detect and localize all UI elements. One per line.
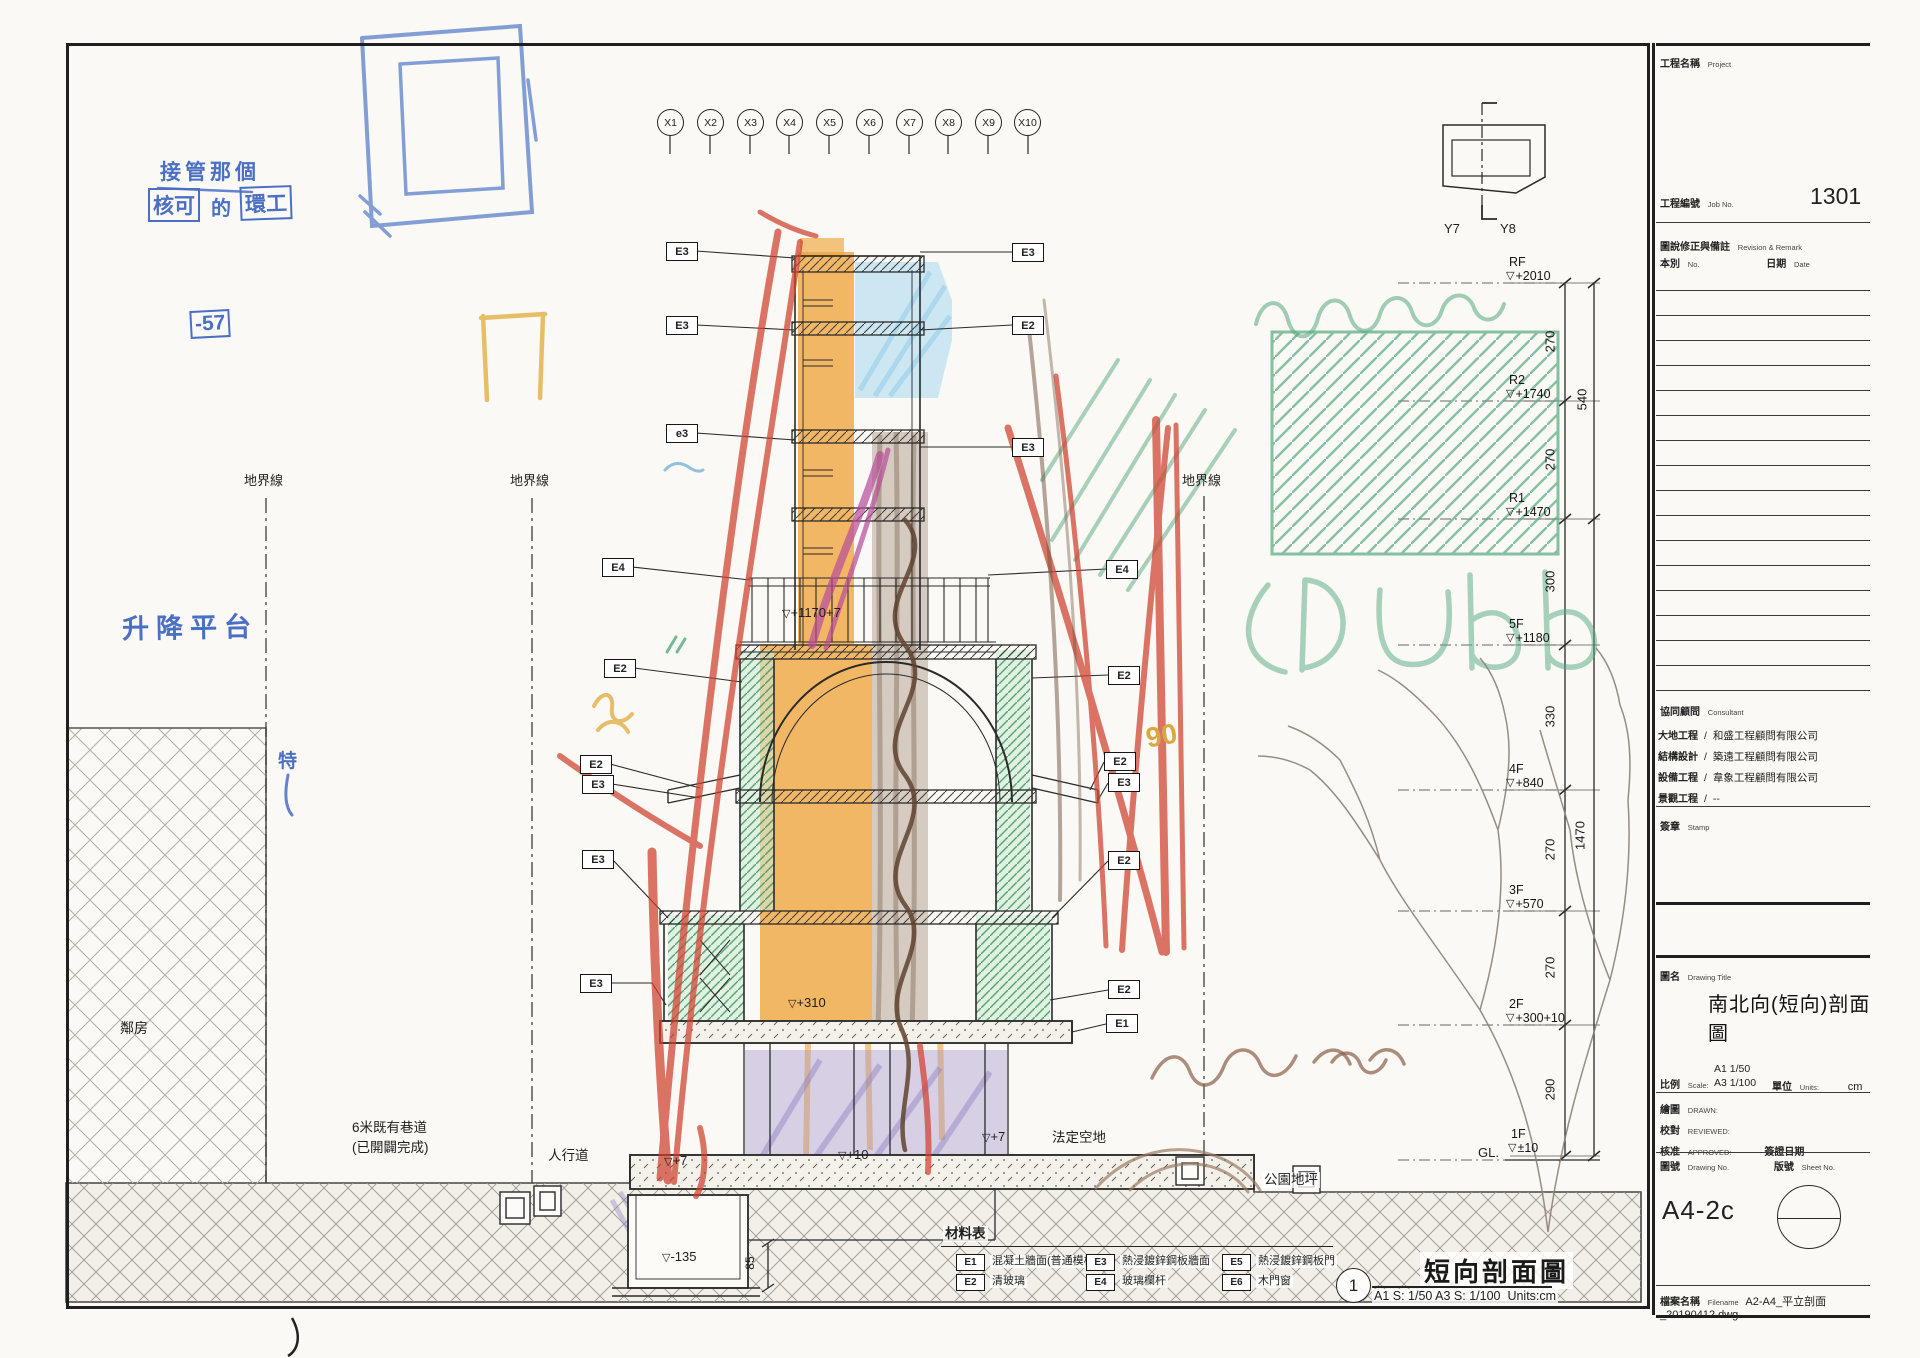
grid-label: X10 (1018, 117, 1037, 129)
level-4f: 4F▽+840 (1506, 763, 1544, 791)
grid-bubble-x8: X8 (935, 109, 962, 136)
revision-rule-line (1656, 365, 1870, 366)
revision-rule-line (1656, 340, 1870, 341)
legend-label-e6: 木門窗 (1256, 1275, 1293, 1288)
consultant-role: 結構設計 (1658, 752, 1698, 763)
revision-rule-line (1656, 315, 1870, 316)
drawing-name-header: 圖名 Drawing Title (1660, 968, 1731, 983)
titleblock-rule (1656, 806, 1870, 807)
dim-1470: 1470 (1573, 814, 1588, 858)
sheet-no-label: 版號 (1774, 1162, 1794, 1173)
revision-rule-line (1656, 390, 1870, 391)
level-triangle-icon: ▽ (1506, 388, 1514, 400)
terrace-level-mark: ▽+1170+7 (782, 606, 841, 621)
consultant-header: 協同顧問 Consultant (1660, 703, 1744, 718)
grid-label: X8 (942, 117, 955, 129)
callout-left-5: E2 (604, 659, 636, 678)
callout-left-2: E3 (666, 316, 698, 335)
legend-label-e5: 熱浸鍍鋅鋼板門 (1256, 1255, 1337, 1268)
titleblock-bottom-border (1656, 1315, 1870, 1318)
rev-no-label-en: No. (1688, 260, 1700, 269)
consultant-label-en: Consultant (1708, 708, 1744, 717)
revision-rule-line (1656, 615, 1870, 616)
revision-rule-line (1656, 440, 1870, 441)
consultant-row-landscape: 景觀工程/-- (1658, 790, 1720, 805)
callout-right-8: E2 (1108, 851, 1140, 870)
callout-left-1: E3 (666, 242, 698, 261)
dim-270-1: 270 (1543, 320, 1558, 364)
grid-bubble-x5: X5 (816, 109, 843, 136)
revision-rule-line (1656, 490, 1870, 491)
revision-header: 圖說修正與備註 Revision & Remark (1660, 238, 1802, 253)
callout-left-3: e3 (666, 424, 698, 443)
legend-label-e4: 玻璃欄杆 (1120, 1275, 1168, 1288)
revision-label-en: Revision & Remark (1738, 243, 1802, 252)
orientation-circle-icon (1777, 1185, 1841, 1249)
revision-rule-line (1656, 540, 1870, 541)
scale-a3: A3 1/100 (1714, 1077, 1756, 1089)
floor-name: R1 (1509, 492, 1551, 506)
grid-label: X7 (903, 117, 916, 129)
grid-label: X2 (704, 117, 717, 129)
boundary-label-3: 地界線 (1182, 474, 1221, 489)
right-walk-value: +7 (990, 1129, 1005, 1144)
keyplan-y8-label: Y8 (1500, 222, 1516, 237)
legend-title: 材料表 (943, 1226, 988, 1242)
consultant-name: 築遠工程顧問有限公司 (1713, 751, 1818, 763)
neighbor-building-hatch (68, 728, 266, 1183)
jobno-label: 工程編號 (1660, 199, 1700, 210)
dim-270-4: 270 (1543, 946, 1558, 990)
floor-elevation: ±10 (1517, 1142, 1538, 1156)
consultant-role: 景觀工程 (1658, 794, 1698, 805)
sheet-no-label-en: Sheet No. (1802, 1163, 1835, 1172)
consultant-sep: / (1704, 730, 1707, 742)
consultant-role: 設備工程 (1658, 773, 1698, 784)
keyplan-y7-label: Y7 (1444, 222, 1460, 237)
neighbor-label: 鄰房 (120, 1020, 148, 1036)
revision-no-date-row: 本別 No. 日期 Date (1660, 255, 1810, 270)
grid-bubble-x1: X1 (657, 109, 684, 136)
boundary-label-2: 地界線 (510, 474, 549, 489)
jobno-value: 1301 (1810, 183, 1861, 210)
handwriting-te: 特 (278, 746, 297, 773)
callout-left-7: E3 (582, 775, 614, 794)
grid-label: X9 (982, 117, 995, 129)
dim-330: 330 (1543, 695, 1558, 739)
right-walk-level-mark: ▽+7 (982, 1130, 1005, 1145)
handwriting-box-b: 環工 (239, 185, 292, 221)
road-label-2: (已開闢完成) (352, 1140, 429, 1156)
rev-date-label-en: Date (1794, 260, 1810, 269)
terrace-level-value: +1170+7 (790, 605, 840, 620)
floor-name: R2 (1509, 374, 1551, 388)
revision-rule-line (1656, 565, 1870, 566)
level-rf: RF▽+2010 (1506, 256, 1551, 284)
consultant-sep: / (1704, 751, 1707, 763)
titleblock-thick-rule (1656, 955, 1870, 958)
legend-label-e1: 混凝土牆面(普通模板) (990, 1255, 1100, 1268)
dim-540: 540 (1575, 378, 1590, 422)
callout-right-9: E2 (1108, 980, 1140, 999)
stamp-label-en: Stamp (1688, 823, 1710, 832)
handwriting-platform: 升降平台 (122, 605, 259, 646)
revision-rule-line (1656, 515, 1870, 516)
callout-left-6: E2 (580, 755, 612, 774)
grid-label: X1 (664, 117, 677, 129)
consultant-label: 協同顧問 (1660, 707, 1700, 718)
level-triangle-icon: ▽ (1506, 898, 1514, 910)
floor-elevation: +2010 (1515, 270, 1550, 284)
consultant-row-mep: 設備工程/韋象工程顧問有限公司 (1658, 769, 1818, 785)
titleblock-rule (1656, 1152, 1870, 1153)
grid-bubble-x7: X7 (896, 109, 923, 136)
dim-270-3: 270 (1543, 828, 1558, 872)
grid-bubble-x3: X3 (737, 109, 764, 136)
entry-level-mark: ▽+10 (838, 1148, 869, 1163)
floor-elevation: +570 (1515, 898, 1543, 912)
callout-left-9: E3 (580, 974, 612, 993)
level-triangle-icon: ▽ (1506, 1012, 1514, 1024)
project-label: 工程名稱 (1660, 59, 1700, 70)
filename-label-en: Filename (1708, 1298, 1739, 1307)
boundary-label-1: 地界線 (244, 474, 283, 489)
drawn-label: 繪圖 (1660, 1105, 1680, 1116)
park-label: 公園地坪 (1262, 1172, 1320, 1188)
sidewalk-label: 人行道 (548, 1148, 589, 1164)
stamp-label: 簽章 (1660, 822, 1680, 833)
titleblock-rule (1656, 1092, 1870, 1093)
view-scale: A1 S: 1/50 A3 S: 1/100 Units:cm (1372, 1289, 1558, 1303)
level-1f: 1F▽±10 (1508, 1128, 1538, 1156)
grid-bubble-x6: X6 (856, 109, 883, 136)
approved-row: 核准 APPROVED: 簽證日期 (1660, 1143, 1804, 1158)
slab2f-level-mark: ▽+310 (788, 996, 826, 1011)
floor-elevation: +840 (1515, 777, 1543, 791)
revision-rule-line (1656, 290, 1870, 291)
floor-name: 1F (1511, 1128, 1538, 1142)
consultant-role: 大地工程 (1658, 731, 1698, 742)
dim-290: 290 (1543, 1068, 1558, 1112)
filename-label: 檔案名稱 (1660, 1297, 1700, 1308)
callout-right-10: E1 (1106, 1014, 1138, 1033)
view-number: 1 (1349, 1276, 1358, 1296)
road-label-1: 6米既有巷道 (352, 1120, 427, 1136)
grid-label: X5 (823, 117, 836, 129)
scale-label: 比例 (1660, 1080, 1680, 1091)
left-walk-value: +7 (672, 1153, 687, 1168)
consultant-name: -- (1713, 793, 1720, 805)
grid-bubble-x4: X4 (776, 109, 803, 136)
orientation-circle-line (1778, 1218, 1840, 1219)
callout-left-4: E4 (602, 558, 634, 577)
legend-label-e3: 熱浸鍍鋅鋼板牆面 (1120, 1255, 1212, 1268)
grid-label: X3 (744, 117, 757, 129)
consultant-name: 和盛工程顧問有限公司 (1713, 730, 1818, 742)
grid-bubble-x10: X10 (1014, 109, 1041, 136)
project-row: 工程名稱 Project (1660, 55, 1731, 70)
legend-code-e4: E4 (1086, 1274, 1115, 1291)
revision-rule-line (1656, 690, 1870, 691)
level-triangle-icon: ▽ (1506, 777, 1514, 789)
legend-code-e3: E3 (1086, 1254, 1115, 1271)
revision-rule-line (1656, 415, 1870, 416)
handwriting-box-a: 核可 (148, 188, 200, 222)
drawing-no-label-en: Drawing No. (1688, 1163, 1729, 1172)
revision-rule-line (1656, 665, 1870, 666)
titleblock-top-border (1656, 43, 1870, 46)
legend-underline (941, 1246, 1333, 1247)
callout-right-6: E2 (1104, 752, 1136, 771)
revision-lines (1652, 290, 1884, 700)
rev-date-label: 日期 (1766, 259, 1786, 270)
revision-rule-line (1656, 590, 1870, 591)
scale-a1: A1 1/50 (1714, 1063, 1750, 1075)
stamp-row: 簽章 Stamp (1660, 818, 1709, 833)
floor-elevation: +1470 (1515, 506, 1550, 520)
level-2f: 2F▽+300+10 (1506, 998, 1565, 1026)
dim-300: 300 (1543, 560, 1558, 604)
floor-name: 4F (1509, 763, 1544, 777)
grid-bubble-x9: X9 (975, 109, 1002, 136)
legend-code-e2: E2 (956, 1274, 985, 1291)
drawn-label-en: DRAWN: (1688, 1106, 1718, 1115)
callout-left-8: E3 (582, 850, 614, 869)
callout-right-3: E3 (1012, 438, 1044, 457)
project-label-en: Project (1708, 60, 1731, 69)
reviewed-label-en: REVIEWED: (1688, 1127, 1730, 1136)
slab2f-level-value: +310 (796, 995, 825, 1010)
callout-right-2: E2 (1012, 316, 1044, 335)
floor-elevation: +300+10 (1515, 1012, 1564, 1026)
consultant-sep: / (1704, 793, 1707, 805)
view-scale-text: A1 S: 1/50 A3 S: 1/100 (1374, 1289, 1500, 1303)
view-units-text: Units:cm (1507, 1289, 1556, 1303)
view-title-underline (1372, 1286, 1552, 1288)
handwriting-line1: 接管那個 (160, 156, 260, 186)
level-r1: R1▽+1470 (1506, 492, 1551, 520)
revision-rule-line (1656, 640, 1870, 641)
titleblock-rule (1656, 222, 1870, 223)
handwriting-neg57: -57 (189, 309, 231, 339)
legend-code-e1: E1 (956, 1254, 985, 1271)
floor-elevation: +1740 (1515, 388, 1550, 402)
grid-bubble-x2: X2 (697, 109, 724, 136)
handwriting-90: 90 (1143, 718, 1179, 755)
reviewed-label: 校對 (1660, 1126, 1680, 1137)
callout-right-5: E2 (1108, 666, 1140, 685)
dim-270-2: 270 (1543, 438, 1558, 482)
floor-elevation: +1180 (1515, 632, 1549, 646)
drawing-name-label-en: Drawing Title (1688, 973, 1731, 982)
pit-level-mark: ▽-135 (662, 1250, 697, 1265)
consultant-row-geo: 大地工程/和盛工程顧問有限公司 (1658, 727, 1818, 743)
titleblock-thick-rule (1656, 902, 1870, 905)
revision-label: 圖說修正與備註 (1660, 242, 1730, 253)
entry-level-value: +10 (846, 1147, 868, 1162)
handwriting-mid: 的 (211, 192, 231, 221)
gl-label: GL. (1478, 1146, 1499, 1161)
pit-dim-85: 85 (743, 1241, 757, 1285)
setback-label: 法定空地 (1052, 1130, 1106, 1146)
drawing-name-label: 圖名 (1660, 972, 1680, 983)
consultant-name: 韋象工程顧問有限公司 (1713, 772, 1818, 784)
drawing-no-row: 圖號 Drawing No. 版號 Sheet No. (1660, 1158, 1835, 1173)
legend-code-e6: E6 (1222, 1274, 1251, 1291)
grid-label: X6 (863, 117, 876, 129)
grid-label: X4 (783, 117, 796, 129)
level-r2: R2▽+1740 (1506, 374, 1551, 402)
level-triangle-icon: ▽ (1506, 506, 1514, 518)
level-triangle-icon: ▽ (1506, 632, 1514, 644)
legend-label-e2: 清玻璃 (990, 1275, 1027, 1288)
scale-row: 比例 Scale: (1660, 1076, 1709, 1091)
floor-name: 3F (1509, 884, 1544, 898)
view-number-bubble: 1 (1336, 1268, 1371, 1303)
floor-name: RF (1509, 256, 1551, 270)
pit-depth-value: -135 (670, 1249, 696, 1264)
callout-right-7: E3 (1108, 773, 1140, 792)
floor-name: 5F (1509, 618, 1550, 632)
scale-label-en: Scale: (1688, 1081, 1709, 1090)
level-3f: 3F▽+570 (1506, 884, 1544, 912)
consultant-sep: / (1704, 772, 1707, 784)
level-triangle-icon: ▽ (1508, 1142, 1516, 1154)
title-block: 工程名稱 Project 工程編號 Job No. 1301 圖說修正與備註 R… (1652, 43, 1884, 1318)
level-5f: 5F▽+1180 (1506, 618, 1550, 646)
level-triangle-icon: ▽ (1506, 270, 1514, 282)
scanned-section-drawing: X1 X2 X3 X4 X5 X6 X7 X8 X9 X10 Y7 Y8 接管那… (0, 0, 1920, 1358)
drawing-no-label: 圖號 (1660, 1162, 1680, 1173)
consultant-row-structure: 結構設計/築遠工程顧問有限公司 (1658, 748, 1818, 764)
revision-rule-line (1656, 465, 1870, 466)
reviewed-row: 校對 REVIEWED: (1660, 1122, 1730, 1137)
jobno-row: 工程編號 Job No. (1660, 195, 1734, 210)
sheet-code: A4-2c (1662, 1195, 1735, 1226)
left-walk-level-mark: ▽+7 (664, 1154, 687, 1169)
legend-code-e5: E5 (1222, 1254, 1251, 1271)
jobno-label-en: Job No. (1708, 200, 1734, 209)
drawing-title-text: 南北向(短向)剖面圖 (1708, 988, 1884, 1046)
rev-no-label: 本別 (1660, 259, 1680, 270)
units-label-en: Units: (1800, 1083, 1819, 1092)
callout-right-1: E3 (1012, 243, 1044, 262)
view-title: 短向剖面圖 (1420, 1252, 1573, 1289)
floor-name: 2F (1509, 998, 1565, 1012)
drawn-row: 繪圖 DRAWN: (1660, 1101, 1718, 1116)
titleblock-rule (1656, 1285, 1870, 1286)
units-row: 單位 Units: cm (1772, 1078, 1862, 1093)
callout-right-4: E4 (1106, 560, 1138, 579)
